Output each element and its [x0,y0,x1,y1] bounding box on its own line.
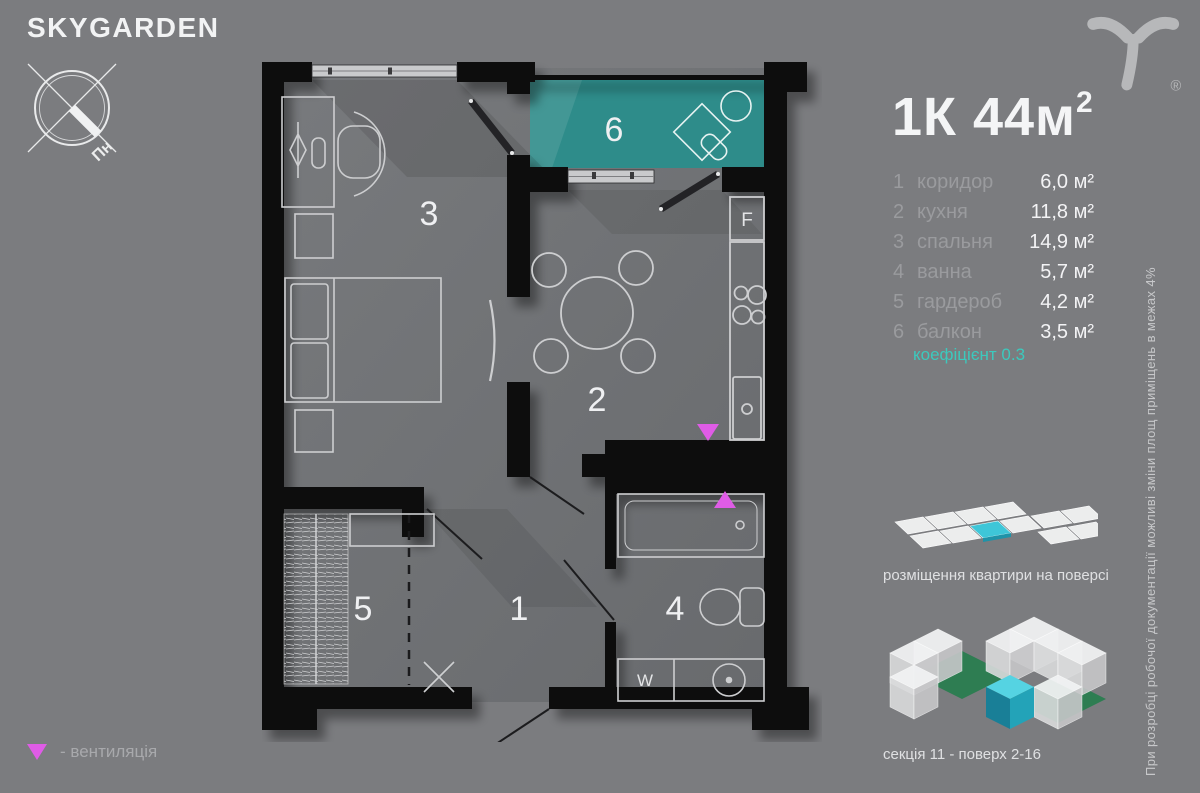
compass-needle-icon [72,108,98,134]
entry-door-swing [484,709,549,742]
room-name: ванна [917,261,1040,284]
room-number-wardrobe: 5 [354,590,373,628]
page: SKYGARDEN Пн ® [0,0,1200,793]
room-name: кухня [917,201,1031,224]
room-area: 5,7 м² [1040,261,1094,284]
apartment-title-sup: 2 [1076,86,1094,119]
room-number-corridor: 1 [510,590,529,628]
registered-mark: ® [1170,78,1181,94]
compass-north-label: Пн [89,138,116,165]
ventilation-legend: - вентиляція [27,742,157,762]
coefficient-note: коефіцієнт 0.3 [913,345,1025,365]
room-area-list: 1 коридор 6,0 м² 2 кухня 11,8 м² 3 спаль… [893,167,1094,347]
window-bedroom [312,65,457,77]
room-num: 1 [893,171,917,194]
room-number-bathroom: 4 [666,590,685,628]
room-name: балкон [917,321,1040,344]
room-name: спальня [917,231,1029,254]
floor-diagram-caption: розміщення квартири на поверсі [883,567,1109,584]
room-num: 5 [893,291,917,314]
room-num: 2 [893,201,917,224]
room-number-balcony: 6 [605,111,624,149]
floor-plan: 3 6 2 5 1 4 F W [262,62,822,742]
room-area: 11,8 м² [1031,201,1094,224]
brand-logo: SKYGARDEN [27,12,219,44]
room-num: 3 [893,231,917,254]
window-kitchen [568,170,654,183]
building-view [880,603,1120,753]
apartment-title: 1К 44м2 [892,86,1094,148]
room-list-item: 5 гардероб 4,2 м² [893,287,1094,317]
room-area: 4,2 м² [1040,291,1094,314]
room-list-item: 4 ванна 5,7 м² [893,257,1094,287]
room-num: 6 [893,321,917,344]
room-list-item: 3 спальня 14,9 м² [893,227,1094,257]
ventilation-label: - вентиляція [60,742,157,762]
fridge-label: F [741,210,753,231]
building-view-caption: секція 11 - поверх 2-16 [883,746,1041,763]
disclaimer-text: При розробці робочої документації можлив… [1143,148,1158,776]
room-name: коридор [917,171,1040,194]
room-area: 3,5 м² [1040,321,1094,344]
washer-label: W [637,671,653,690]
developer-bird-logo-icon: ® [1085,14,1185,94]
room-num: 4 [893,261,917,284]
room-list-item: 1 коридор 6,0 м² [893,167,1094,197]
floor-position-diagram [883,492,1098,564]
room-area: 6,0 м² [1040,171,1094,194]
room-number-bedroom: 3 [420,195,439,233]
room-list-item: 2 кухня 11,8 м² [893,197,1094,227]
room-list-item: 6 балкон 3,5 м² [893,317,1094,347]
ventilation-triangle-icon [27,744,47,760]
apartment-title-main: 1К 44м [892,87,1076,147]
compass: Пн [14,56,134,176]
room-name: гардероб [917,291,1040,314]
room-area: 14,9 м² [1029,231,1094,254]
room-number-kitchen: 2 [588,381,607,419]
